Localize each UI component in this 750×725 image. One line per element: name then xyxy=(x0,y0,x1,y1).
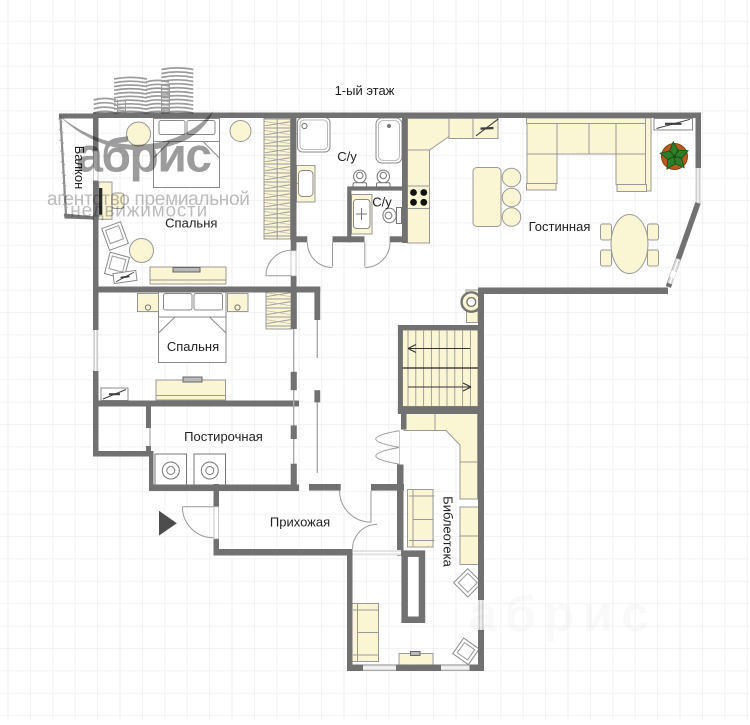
svg-text:Гостинная: Гостинная xyxy=(529,219,591,234)
svg-text:недвижимости: недвижимости xyxy=(70,201,208,222)
svg-text:Библеотека: Библеотека xyxy=(441,496,456,567)
svg-text:1-ый этаж: 1-ый этаж xyxy=(335,83,395,98)
svg-text:С/у: С/у xyxy=(337,149,357,164)
svg-text:Постирочная: Постирочная xyxy=(184,429,263,444)
svg-text:С/у: С/у xyxy=(372,194,392,209)
svg-text:Прихожая: Прихожая xyxy=(270,515,330,530)
svg-text:абрис: абрис xyxy=(469,586,657,642)
svg-text:абрис: абрис xyxy=(76,130,211,183)
svg-text:Спальня: Спальня xyxy=(167,339,219,354)
